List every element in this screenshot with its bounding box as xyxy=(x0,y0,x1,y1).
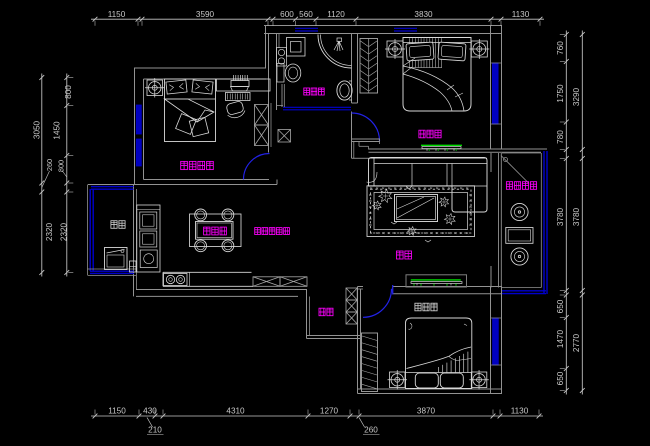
svg-text:1150: 1150 xyxy=(108,407,126,416)
svg-text:3780: 3780 xyxy=(572,207,581,226)
svg-text:1130: 1130 xyxy=(511,407,529,416)
svg-text:4310: 4310 xyxy=(226,407,245,416)
svg-text:430: 430 xyxy=(143,407,157,416)
svg-text:3050: 3050 xyxy=(33,120,42,139)
svg-text:2770: 2770 xyxy=(572,333,581,352)
svg-text:800: 800 xyxy=(64,85,73,99)
svg-text:3290: 3290 xyxy=(572,87,581,106)
svg-text:1120: 1120 xyxy=(327,10,345,19)
svg-text:760: 760 xyxy=(556,41,565,55)
svg-text:3780: 3780 xyxy=(556,207,565,226)
svg-text:1150: 1150 xyxy=(108,10,126,19)
svg-text:1470: 1470 xyxy=(556,329,565,348)
svg-text:1270: 1270 xyxy=(320,407,339,416)
svg-text:260: 260 xyxy=(45,159,54,171)
svg-text:260: 260 xyxy=(364,426,378,435)
svg-text:3590: 3590 xyxy=(196,10,215,19)
svg-text:650: 650 xyxy=(556,371,565,385)
svg-text:650: 650 xyxy=(556,299,565,313)
svg-text:560: 560 xyxy=(299,10,313,19)
svg-text:780: 780 xyxy=(556,130,565,144)
svg-text:210: 210 xyxy=(148,426,162,435)
svg-text:800: 800 xyxy=(56,160,65,172)
svg-text:3870: 3870 xyxy=(417,407,436,416)
svg-text:2320: 2320 xyxy=(60,222,69,241)
svg-text:600: 600 xyxy=(280,10,294,19)
svg-text:1130: 1130 xyxy=(512,10,530,19)
svg-text:1450: 1450 xyxy=(53,121,62,140)
svg-text:1750: 1750 xyxy=(556,84,565,103)
svg-text:2320: 2320 xyxy=(45,222,54,241)
svg-text:3830: 3830 xyxy=(414,10,433,19)
